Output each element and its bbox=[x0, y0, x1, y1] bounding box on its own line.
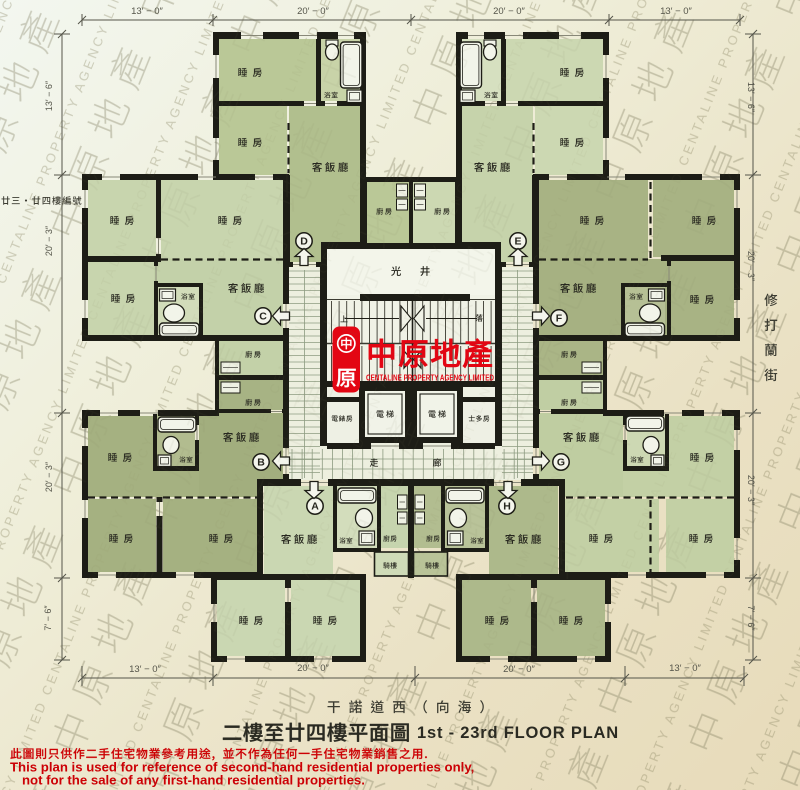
svg-text:13′ − 0″: 13′ − 0″ bbox=[131, 6, 163, 17]
svg-text:C: C bbox=[259, 311, 267, 323]
svg-text:not for the sale of any first-: not for the sale of any first-hand resid… bbox=[22, 773, 365, 788]
svg-text:F: F bbox=[556, 313, 563, 325]
svg-text:13′ − 6″: 13′ − 6″ bbox=[746, 82, 756, 113]
svg-text:B: B bbox=[257, 457, 265, 469]
svg-text:7′ − 6″: 7′ − 6″ bbox=[43, 605, 53, 631]
svg-text:H: H bbox=[503, 501, 511, 513]
svg-text:20′ − 3″: 20′ − 3″ bbox=[44, 461, 54, 492]
svg-text:20′ − 3″: 20′ − 3″ bbox=[44, 225, 54, 256]
svg-text:20′ − 0″: 20′ − 0″ bbox=[493, 6, 525, 17]
svg-text:A: A bbox=[311, 501, 319, 513]
svg-text:13′ − 6″: 13′ − 6″ bbox=[44, 80, 54, 111]
svg-text:D: D bbox=[300, 236, 308, 248]
svg-text:E: E bbox=[514, 236, 521, 248]
